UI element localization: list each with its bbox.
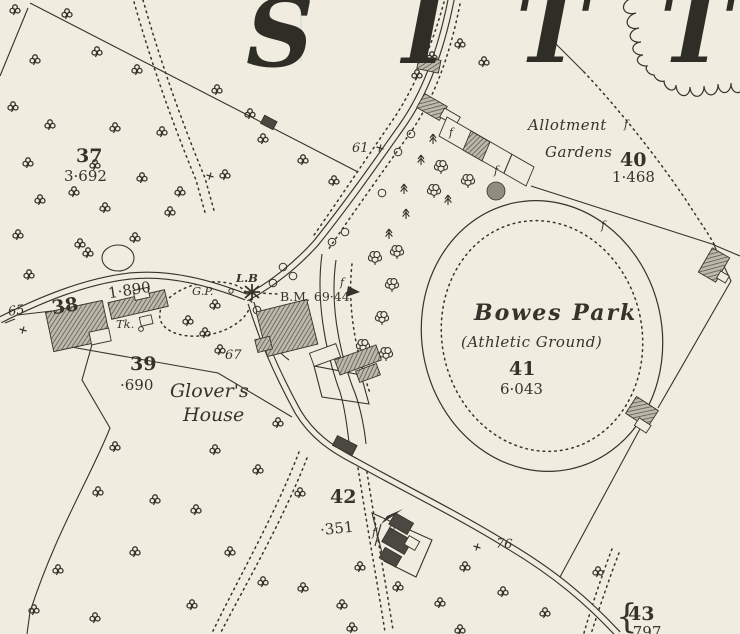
parcel-37-number: 37 <box>76 145 102 167</box>
label-bowes-park: Bowes Park <box>473 300 637 326</box>
label-guide-post: G.P. <box>192 284 214 298</box>
big-letter-s: S <box>246 0 314 89</box>
label-benchmark: B.M. 69·44 <box>280 289 350 304</box>
label-athletic-ground: (Athletic Ground) <box>461 333 602 351</box>
big-letter-t2: T <box>660 0 736 85</box>
road-number-65: 65 <box>7 303 25 320</box>
parcel-43-area: ·797 <box>628 623 661 634</box>
letter-box-icon <box>244 284 260 300</box>
parcel-41-area: 6·043 <box>500 380 543 398</box>
road-number-67: 67 <box>225 348 242 363</box>
label-gardens: Gardens <box>545 143 612 161</box>
parcel-40-area: 1·468 <box>612 168 655 186</box>
parcel-39-area: ·690 <box>120 376 153 394</box>
road-number-76: 76 <box>495 536 513 552</box>
parcel-37-area: 3·692 <box>64 167 107 185</box>
parcel-43-number: 43 <box>628 603 654 625</box>
label-allotment: Allotment <box>526 116 607 134</box>
big-letter-t1: T <box>516 0 592 85</box>
ordnance-survey-map: S I T T 37 3·692 Allotment Gardens 40 1·… <box>0 0 740 634</box>
road-number-61: 61 <box>352 141 369 156</box>
parcel-42-number: 42 <box>330 486 356 508</box>
label-house: House <box>182 404 244 426</box>
label-glovers: Glover's <box>170 380 249 402</box>
big-letter-i: I <box>399 0 449 86</box>
pond-icon <box>487 182 505 200</box>
map-canvas: S I T T 37 3·692 Allotment Gardens 40 1·… <box>0 0 740 634</box>
parcel-39-number: 39 <box>130 353 156 375</box>
label-letter-box: L.B <box>235 271 258 285</box>
parcel-41-number: 41 <box>509 358 535 380</box>
parcel-42-area: ·351 <box>319 518 354 539</box>
label-tank: Tk. <box>116 317 134 331</box>
parcel-38-number: 38 <box>50 293 80 319</box>
